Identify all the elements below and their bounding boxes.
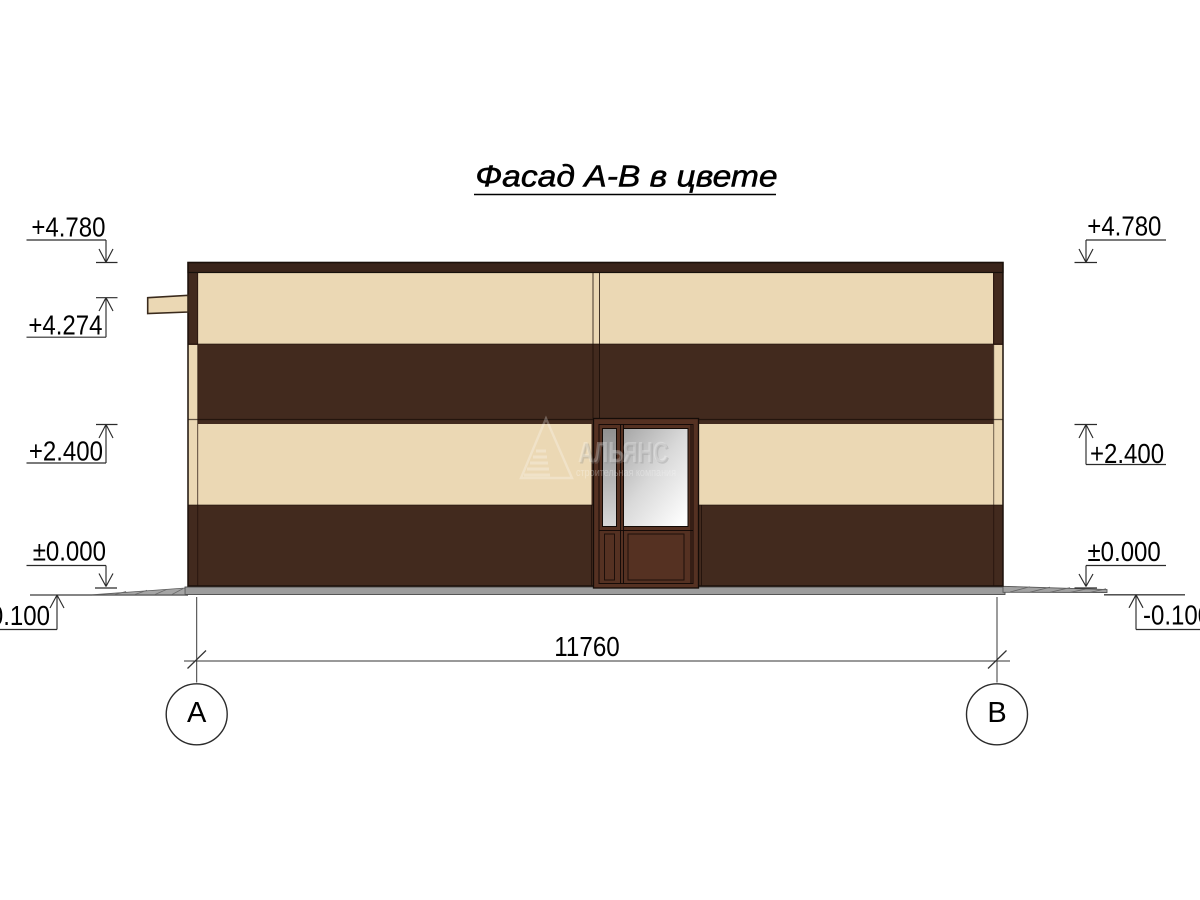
- svg-text:+4.274: +4.274: [28, 311, 102, 341]
- svg-text:+4.780: +4.780: [1087, 212, 1161, 242]
- svg-text:+2.400: +2.400: [1090, 440, 1164, 470]
- svg-text:-0.100: -0.100: [0, 602, 50, 632]
- svg-text:B: B: [987, 697, 1006, 729]
- svg-text:-0.100: -0.100: [1143, 601, 1200, 631]
- svg-text:Фасад А-В в цвете: Фасад А-В в цвете: [475, 159, 777, 194]
- svg-text:±0.000: ±0.000: [1088, 538, 1161, 568]
- svg-text:строительная компания: строительная компания: [576, 467, 676, 479]
- svg-text:+4.780: +4.780: [31, 213, 105, 243]
- svg-text:АЛЬЯНС: АЛЬЯНС: [578, 437, 668, 469]
- svg-text:11760: 11760: [554, 632, 619, 662]
- svg-text:±0.000: ±0.000: [33, 537, 106, 567]
- svg-text:A: A: [187, 697, 207, 729]
- svg-text:+2.400: +2.400: [29, 437, 103, 467]
